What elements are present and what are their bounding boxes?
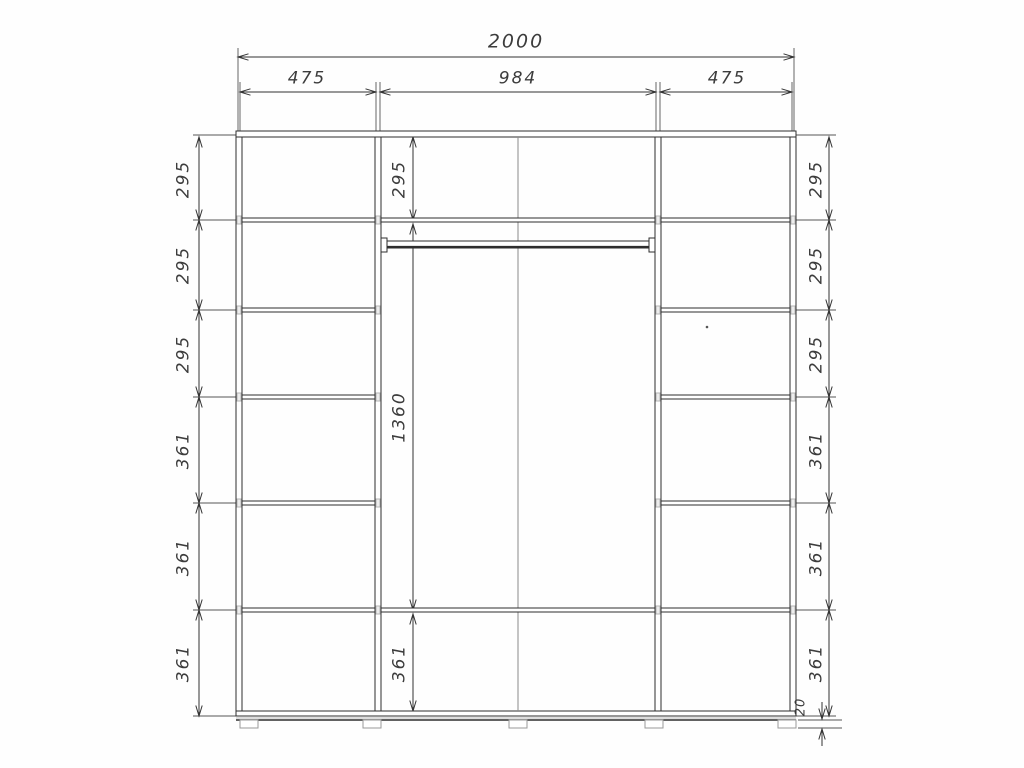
dim-label-overall-width: 2000 bbox=[488, 33, 544, 52]
dim-label-left-5: 361 bbox=[176, 538, 193, 576]
dim-label-right-1: 295 bbox=[809, 160, 826, 198]
dim-label-right-6: 361 bbox=[809, 644, 826, 682]
rod-bracket-right bbox=[649, 238, 655, 252]
speck bbox=[706, 326, 709, 329]
drawing-linework bbox=[0, 0, 1024, 768]
feet bbox=[240, 720, 796, 728]
bottom-panel bbox=[236, 711, 796, 716]
dim-label-center-3: 361 bbox=[392, 644, 409, 682]
dim-label-left-2: 295 bbox=[176, 246, 193, 284]
dim-label-section-right: 475 bbox=[708, 71, 746, 88]
dim-label-base-height: 20 bbox=[795, 698, 808, 717]
dim-label-section-left: 475 bbox=[288, 71, 326, 88]
dim-label-left-3: 295 bbox=[176, 335, 193, 373]
dim-label-center-1: 295 bbox=[392, 160, 409, 198]
dim-label-center-2: 1360 bbox=[392, 391, 409, 442]
dim-label-left-1: 295 bbox=[176, 160, 193, 198]
shelves bbox=[242, 218, 790, 612]
wardrobe-dimension-drawing: 2000 475 984 475 295 295 295 361 361 361… bbox=[0, 0, 1024, 768]
connector-fittings bbox=[237, 216, 795, 614]
dim-label-section-center: 984 bbox=[499, 71, 537, 88]
dim-label-right-3: 295 bbox=[809, 335, 826, 373]
dimension-lines bbox=[199, 57, 829, 746]
dim-label-right-5: 361 bbox=[809, 538, 826, 576]
dim-label-left-6: 361 bbox=[176, 644, 193, 682]
top-panel bbox=[236, 131, 796, 137]
dim-label-left-4: 361 bbox=[176, 431, 193, 469]
dim-label-right-2: 295 bbox=[809, 246, 826, 284]
dim-label-right-4: 361 bbox=[809, 431, 826, 469]
rod-bracket-left bbox=[381, 238, 387, 252]
